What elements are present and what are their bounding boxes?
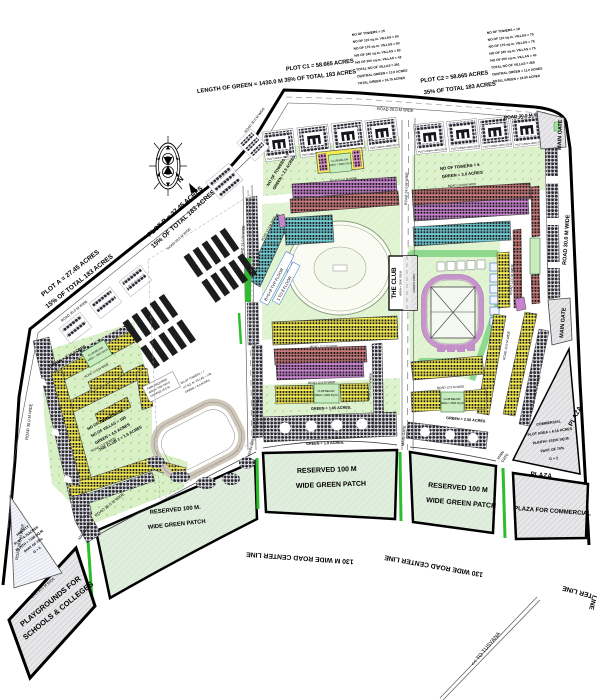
- svg-text:MAIN GATE: MAIN GATE: [557, 119, 564, 150]
- svg-text:AREA = 2900 SQ.M.: AREA = 2900 SQ.M.: [399, 270, 403, 296]
- svg-text:CLUB BELOW: CLUB BELOW: [443, 397, 461, 401]
- svg-text:GOODS YARD: GOODS YARD: [412, 274, 416, 293]
- svg-text:AREA = 2900 SQ.M: AREA = 2900 SQ.M: [441, 401, 464, 405]
- svg-text:THE CLUB: THE CLUB: [391, 267, 398, 299]
- svg-text:CLUB BELOW: CLUB BELOW: [317, 389, 335, 393]
- svg-text:AREA = 2900 SQ.M: AREA = 2900 SQ.M: [315, 393, 338, 397]
